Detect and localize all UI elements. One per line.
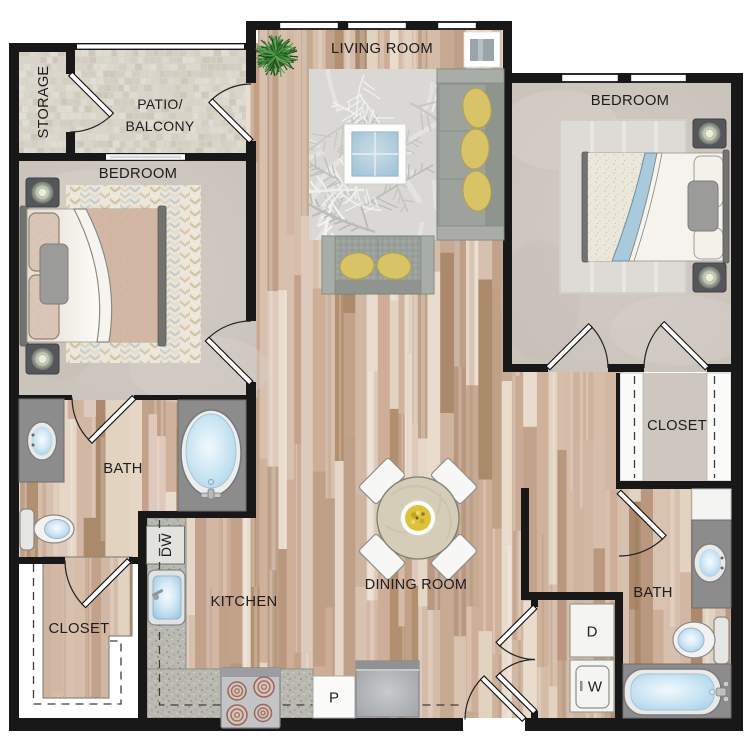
- svg-text:LIVING ROOM: LIVING ROOM: [331, 41, 433, 57]
- svg-text:CLOSET: CLOSET: [647, 418, 707, 434]
- svg-text:BEDROOM: BEDROOM: [99, 166, 178, 182]
- svg-text:W: W: [588, 679, 603, 696]
- svg-text:DINING ROOM: DINING ROOM: [365, 577, 467, 593]
- svg-text:BEDROOM: BEDROOM: [591, 93, 670, 109]
- svg-text:DW: DW: [158, 533, 174, 558]
- svg-text:P: P: [329, 690, 339, 707]
- svg-text:BALCONY: BALCONY: [125, 118, 194, 134]
- svg-text:KITCHEN: KITCHEN: [210, 594, 277, 610]
- svg-text:BATH: BATH: [633, 585, 673, 601]
- svg-text:PATIO/: PATIO/: [137, 96, 183, 112]
- svg-text:D: D: [587, 624, 598, 641]
- svg-text:BATH: BATH: [103, 461, 143, 477]
- svg-text:STORAGE: STORAGE: [36, 66, 52, 139]
- svg-text:CLOSET: CLOSET: [48, 621, 109, 637]
